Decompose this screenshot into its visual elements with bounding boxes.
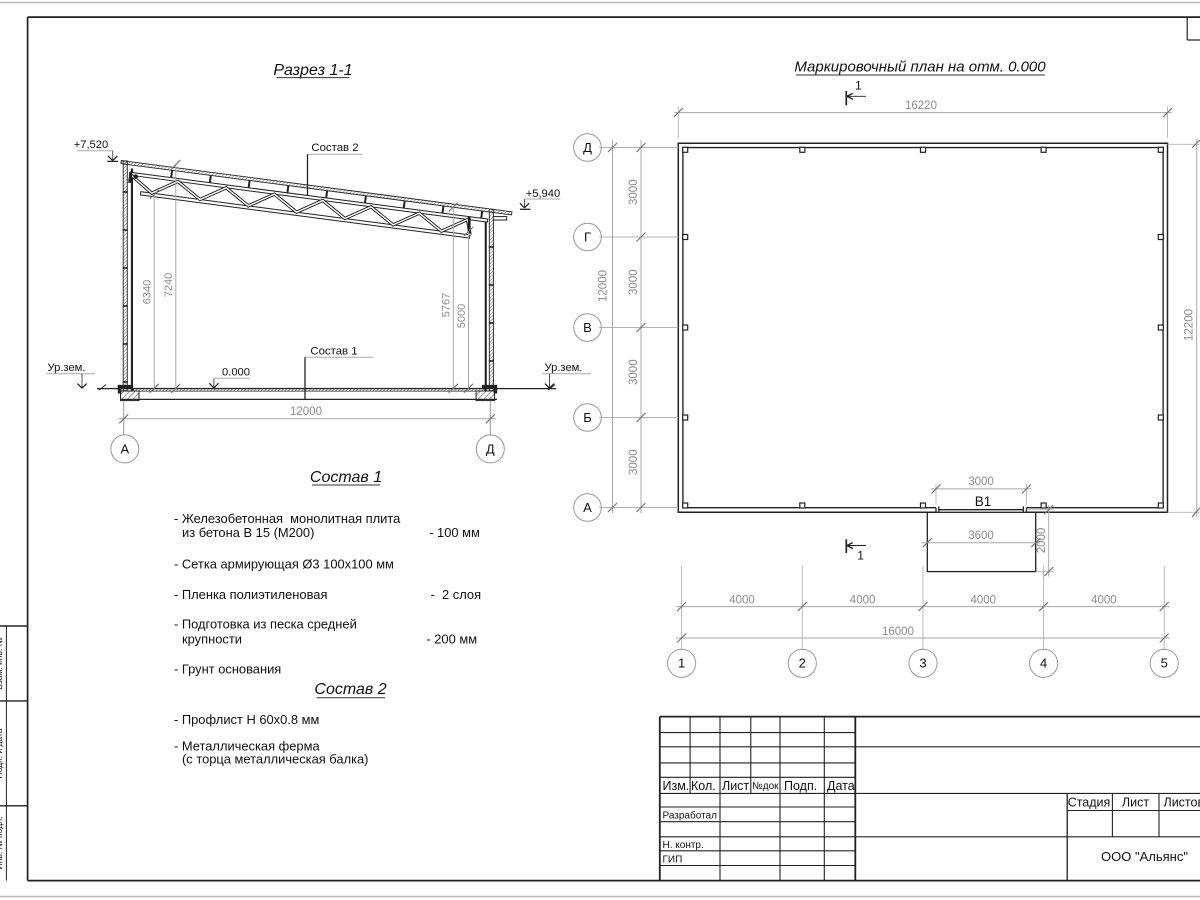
svg-text:12200: 12200 xyxy=(1184,309,1196,341)
svg-text:+5,940: +5,940 xyxy=(526,188,561,200)
svg-text:Маркировочный план на отм. 0.0: Маркировочный план на отм. 0.000 xyxy=(794,59,1046,76)
svg-text:Изм.: Изм. xyxy=(663,779,690,793)
svg-text:4000: 4000 xyxy=(971,594,997,606)
svg-text:- Подготовка из песка средней: - Подготовка из песка средней xyxy=(174,617,357,632)
svg-text:(с торца металлическая балка): (с торца металлическая балка) xyxy=(182,752,368,767)
svg-text:Инв. № подл.: Инв. № подл. xyxy=(0,817,4,870)
svg-text:Д: Д xyxy=(583,140,592,155)
svg-text:Лист: Лист xyxy=(722,779,749,793)
svg-text:Состав 1: Состав 1 xyxy=(310,469,382,486)
svg-text:Ур.зем.: Ур.зем. xyxy=(545,362,583,374)
svg-text:12000: 12000 xyxy=(290,406,322,418)
svg-text:1: 1 xyxy=(857,548,864,562)
svg-text:Д: Д xyxy=(486,442,495,457)
svg-text:- 200 мм: - 200 мм xyxy=(426,632,477,647)
svg-text:2: 2 xyxy=(799,656,806,671)
svg-text:Лист: Лист xyxy=(1122,796,1149,810)
svg-text:А: А xyxy=(583,500,592,515)
svg-text:- Пленка полиэтиленовая: - Пленка полиэтиленовая xyxy=(174,587,327,602)
svg-text:из бетона В 15 (М200): из бетона В 15 (М200) xyxy=(182,525,314,540)
svg-text:2000: 2000 xyxy=(1036,528,1048,554)
svg-text:1: 1 xyxy=(855,79,862,93)
svg-text:Ур.зем.: Ур.зем. xyxy=(48,362,86,374)
svg-text:- 2 слоя: - 2 слоя xyxy=(431,587,481,602)
svg-text:- 100 мм: - 100 мм xyxy=(429,525,480,540)
svg-text:5: 5 xyxy=(1161,656,1168,671)
svg-text:Состав 2: Состав 2 xyxy=(311,142,358,154)
svg-text:4000: 4000 xyxy=(729,594,755,606)
svg-text:12000: 12000 xyxy=(598,270,610,302)
svg-text:Н. контр.: Н. контр. xyxy=(663,840,704,851)
svg-text:1: 1 xyxy=(678,656,685,671)
svg-text:Взам. инв. №: Взам. инв. № xyxy=(0,637,4,690)
svg-text:В: В xyxy=(583,320,592,335)
svg-text:- Профлист Н 60х0.8 мм: - Профлист Н 60х0.8 мм xyxy=(174,712,319,727)
svg-text:В1: В1 xyxy=(975,494,992,509)
svg-text:3000: 3000 xyxy=(628,359,640,385)
svg-text:- Железобетонная монолитная п: - Железобетонная монолитная плита xyxy=(174,511,401,526)
svg-text:5000: 5000 xyxy=(456,304,468,328)
svg-text:4000: 4000 xyxy=(850,594,876,606)
svg-text:- Сетка армирующая Ø3 100х100: - Сетка армирующая Ø3 100х100 мм xyxy=(174,557,394,572)
svg-text:Разработал: Разработал xyxy=(663,810,718,822)
svg-text:3000: 3000 xyxy=(968,476,994,488)
svg-text:ООО "Альянс": ООО "Альянс" xyxy=(1101,849,1188,864)
svg-text:0.000: 0.000 xyxy=(222,367,250,379)
svg-text:Стадия: Стадия xyxy=(1068,796,1111,810)
svg-text:3000: 3000 xyxy=(628,179,640,205)
svg-text:Подп.: Подп. xyxy=(784,779,817,793)
svg-text:Г: Г xyxy=(584,230,591,245)
svg-text:16220: 16220 xyxy=(905,100,937,112)
svg-text:6340: 6340 xyxy=(142,280,154,304)
svg-text:16000: 16000 xyxy=(882,626,914,638)
svg-text:3000: 3000 xyxy=(628,269,640,295)
svg-text:3: 3 xyxy=(919,656,926,671)
svg-text:Листов: Листов xyxy=(1164,796,1200,810)
svg-text:- Грунт основания: - Грунт основания xyxy=(174,662,281,677)
svg-text:7240: 7240 xyxy=(163,273,175,297)
svg-text:5767: 5767 xyxy=(441,293,453,317)
svg-text:Дата: Дата xyxy=(827,779,855,793)
svg-text:ГИП: ГИП xyxy=(663,855,683,866)
svg-text:А: А xyxy=(120,442,129,457)
svg-text:3000: 3000 xyxy=(628,449,640,475)
svg-text:Состав 2: Состав 2 xyxy=(314,681,386,698)
svg-text:крупности: крупности xyxy=(182,632,242,647)
svg-text:3600: 3600 xyxy=(968,530,994,542)
svg-text:Подп. и дата: Подп. и дата xyxy=(0,728,4,778)
svg-text:+7,520: +7,520 xyxy=(74,139,109,151)
svg-text:Состав 1: Состав 1 xyxy=(310,345,357,357)
svg-text:4: 4 xyxy=(1040,656,1047,671)
svg-text:4000: 4000 xyxy=(1091,594,1117,606)
svg-text:№док.: №док. xyxy=(752,781,781,792)
svg-text:Б: Б xyxy=(583,410,592,425)
svg-text:Разрез 1-1: Разрез 1-1 xyxy=(273,62,352,79)
svg-text:Кол.: Кол. xyxy=(691,779,716,793)
